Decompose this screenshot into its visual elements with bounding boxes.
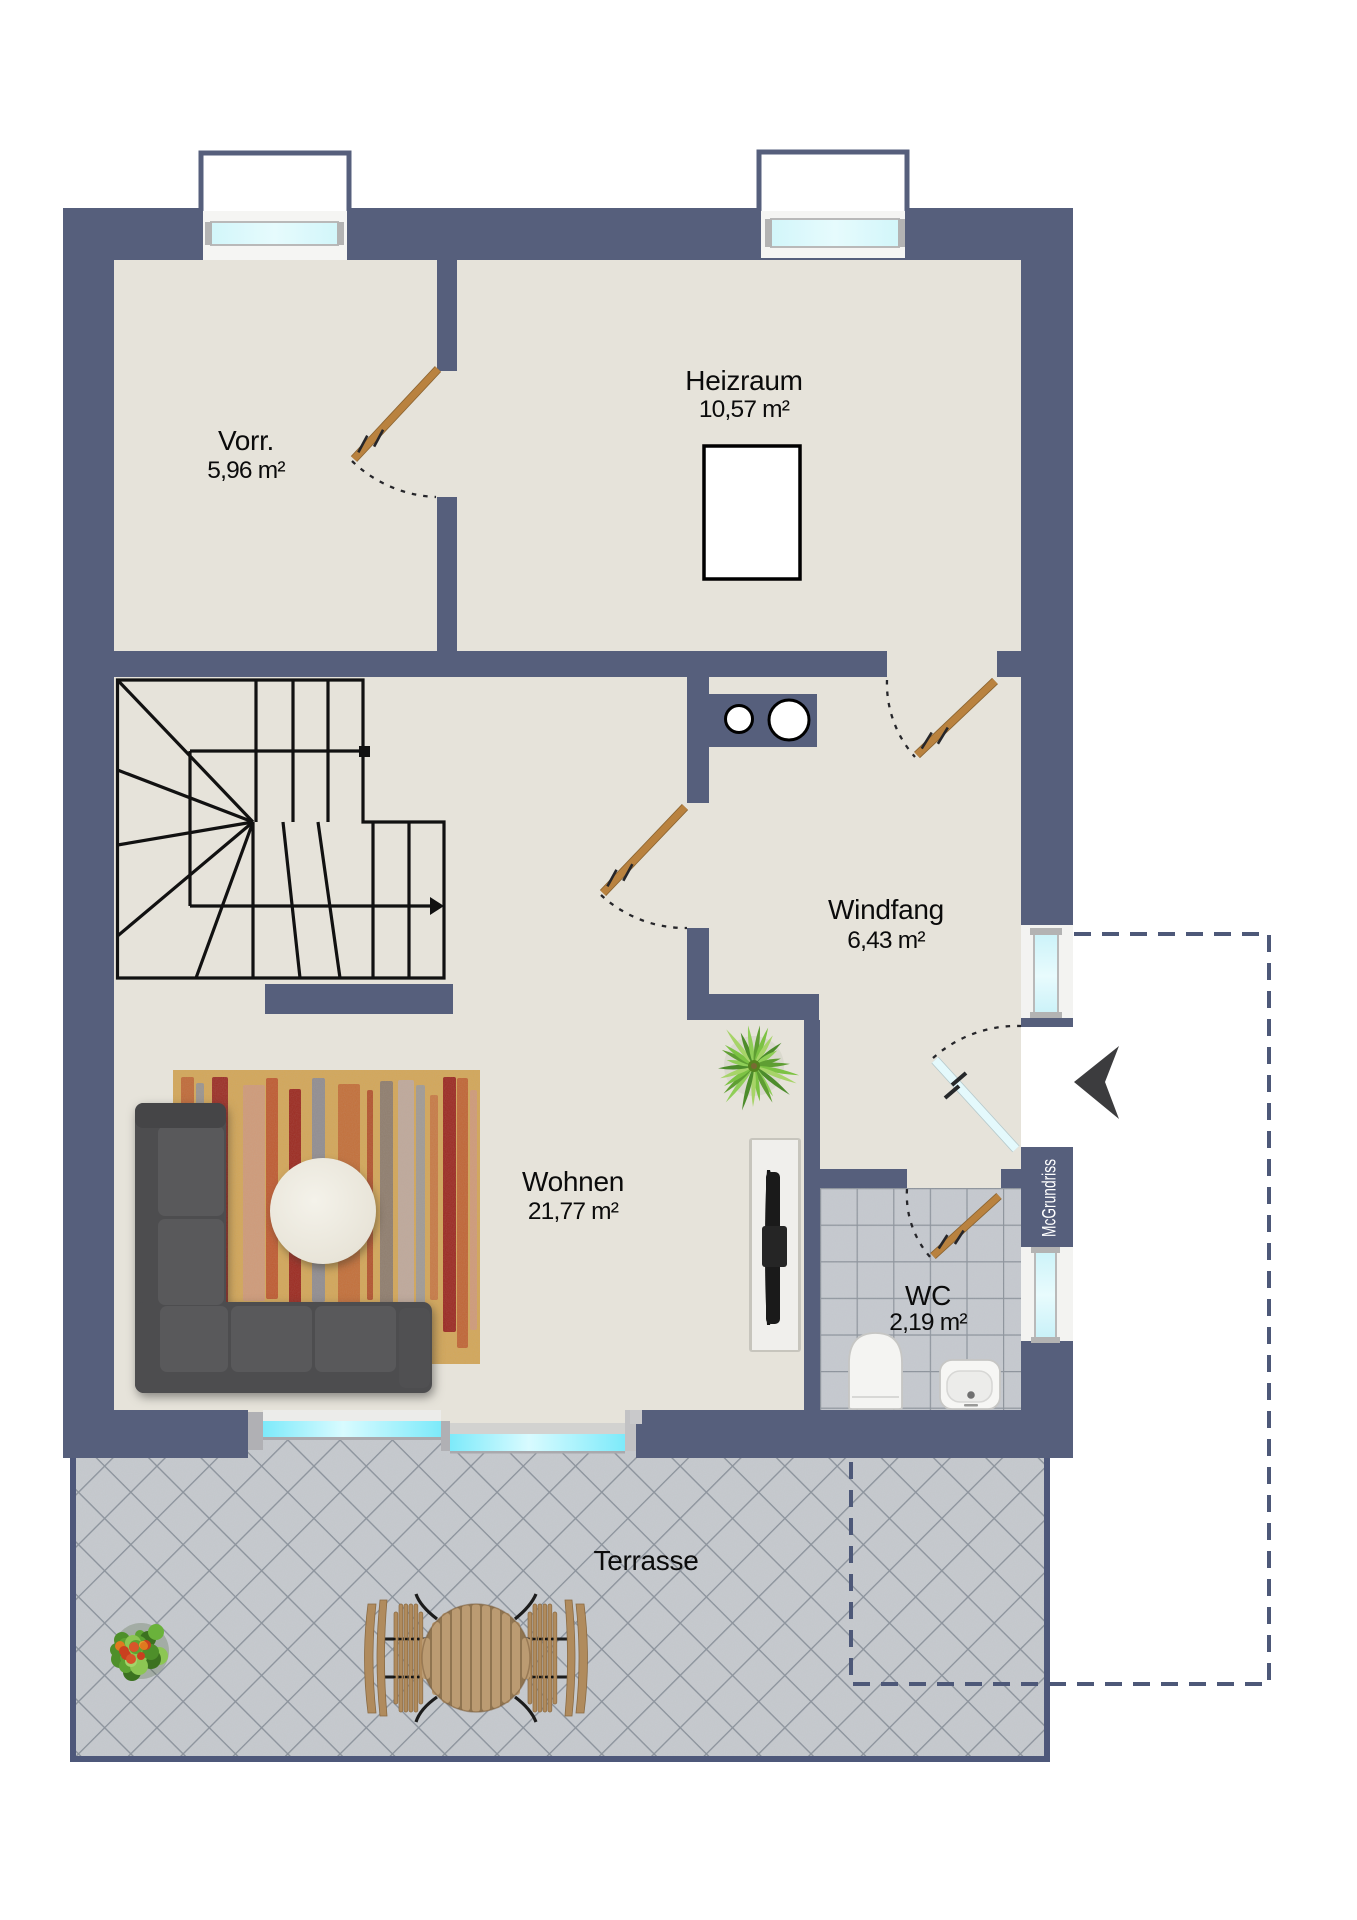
svg-text:WC: WC: [905, 1280, 951, 1311]
svg-text:Terrasse: Terrasse: [594, 1545, 699, 1576]
svg-text:5,96 m²: 5,96 m²: [207, 457, 285, 484]
svg-text:Wohnen: Wohnen: [522, 1166, 624, 1197]
svg-text:Windfang: Windfang: [828, 894, 944, 925]
svg-text:McGrundriss: McGrundriss: [1040, 1159, 1061, 1237]
svg-text:10,57 m²: 10,57 m²: [699, 396, 790, 423]
svg-text:Vorr.: Vorr.: [218, 425, 274, 456]
svg-text:Heizraum: Heizraum: [685, 365, 802, 396]
svg-text:6,43 m²: 6,43 m²: [847, 927, 925, 954]
svg-text:21,77 m²: 21,77 m²: [528, 1198, 619, 1225]
svg-text:2,19 m²: 2,19 m²: [889, 1309, 967, 1336]
